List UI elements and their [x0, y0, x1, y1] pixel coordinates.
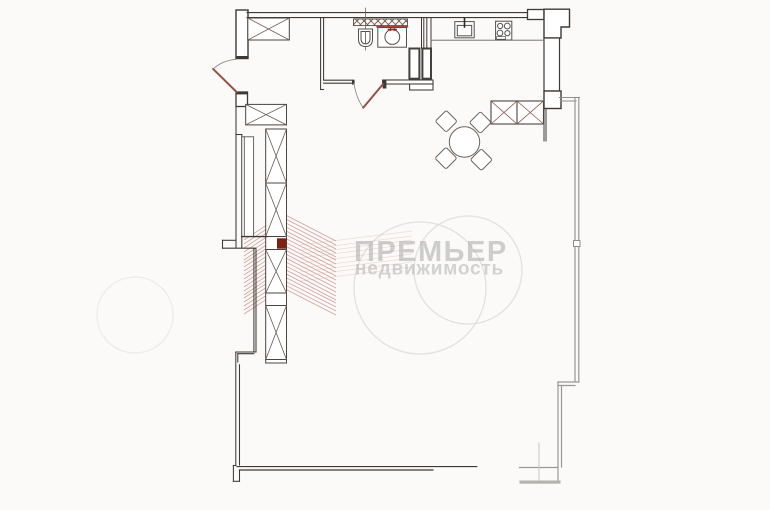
svg-text:недвижимость: недвижимость [355, 259, 504, 280]
